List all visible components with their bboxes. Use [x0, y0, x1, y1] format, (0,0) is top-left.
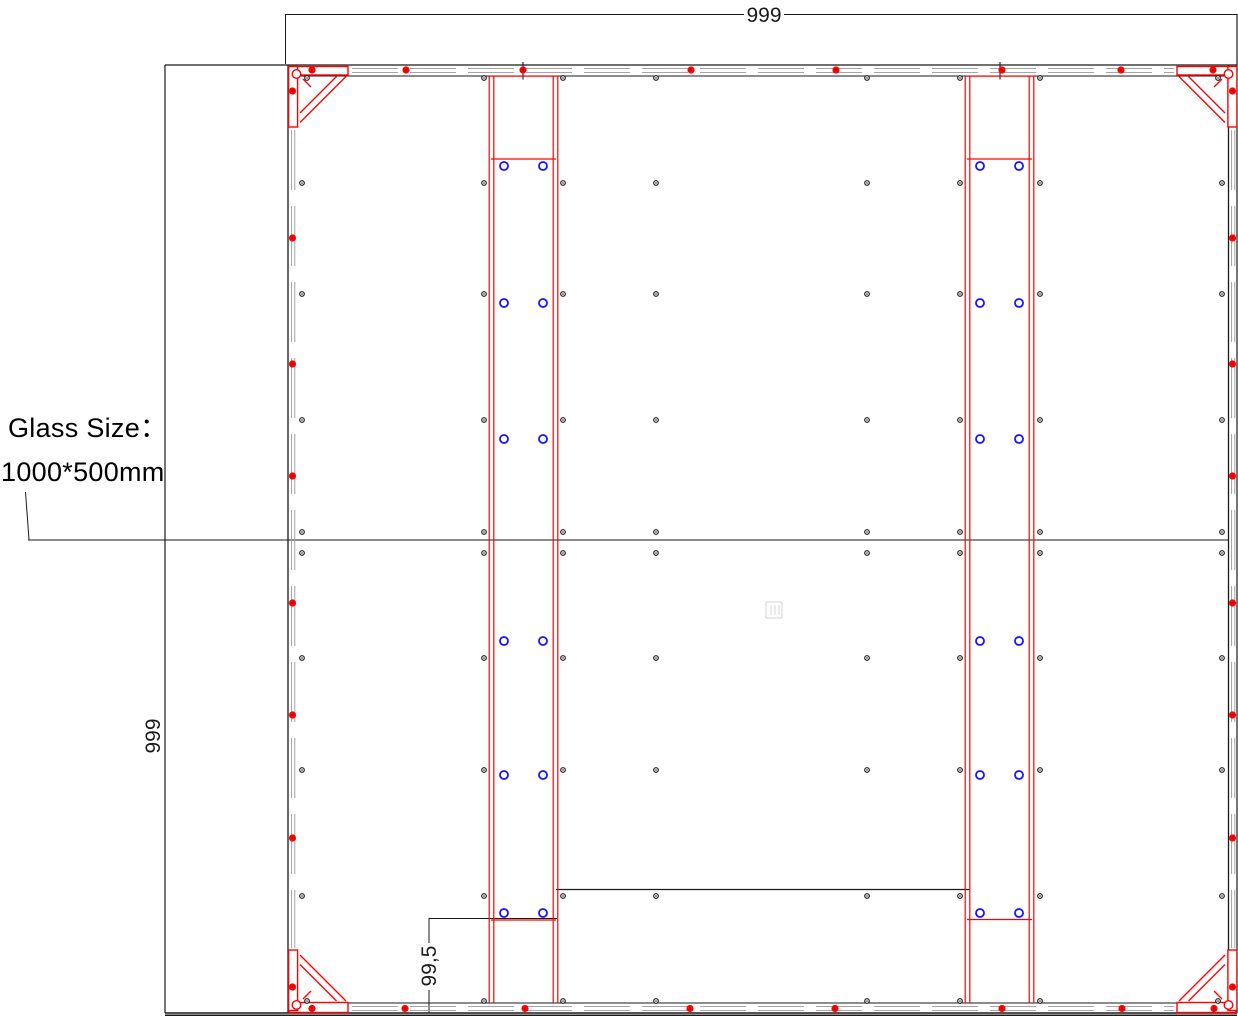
- blue-bolt-hole: [539, 909, 547, 917]
- red-screw-dot-core: [404, 1008, 406, 1010]
- center-mark-box: [766, 602, 782, 618]
- red-screw-dot-core: [292, 837, 294, 839]
- glass-outline-and-borders: [28, 14, 1237, 1015]
- red-screw-dot-core: [405, 69, 407, 71]
- red-screw-dot-core: [1232, 475, 1234, 477]
- blue-bolt-hole: [1015, 909, 1023, 917]
- black-rivet-dot-core: [483, 293, 485, 295]
- black-rivet-dot-core: [1221, 895, 1223, 897]
- black-rivet-dot-core: [866, 1000, 868, 1002]
- bracket-pivot-hole: [1224, 70, 1233, 79]
- black-rivet-dot-core: [959, 77, 961, 79]
- bracket-brace-2: [300, 965, 337, 1002]
- black-rivet-dot-core: [562, 657, 564, 659]
- blue-bolt-hole: [500, 299, 508, 307]
- red-screw-dot-core: [1120, 69, 1122, 71]
- blue-bolt-hole: [1015, 771, 1023, 779]
- red-screw-dot-core: [292, 714, 294, 716]
- black-rivet-dot-core: [483, 895, 485, 897]
- black-rivet-dot-core: [866, 419, 868, 421]
- black-rivet-dot-core: [1039, 77, 1041, 79]
- black-rivet-dot-core: [301, 531, 303, 533]
- black-rivet-dot-core: [562, 531, 564, 533]
- bracket-brace-3: [303, 991, 311, 999]
- black-rivet-dot-core: [483, 531, 485, 533]
- red-screw-dot-core: [292, 475, 294, 477]
- glass-size-label-line2: 1000*500mm: [1, 457, 165, 487]
- label-leader-line: [26, 492, 30, 540]
- black-rivet-dot-core: [959, 293, 961, 295]
- black-rivet-dot-core: [1217, 1000, 1219, 1002]
- black-rivet-dot-core: [866, 769, 868, 771]
- bracket-brace-1: [300, 955, 346, 1001]
- black-rivet-dot-core: [959, 552, 961, 554]
- black-rivet-dot-core: [1039, 182, 1041, 184]
- black-rivet-dot-core: [1039, 552, 1041, 554]
- black-rivet-dot-core: [655, 293, 657, 295]
- black-rivet-dot-core: [301, 657, 303, 659]
- black-rivet-dot-core: [562, 419, 564, 421]
- corner-bracket-bottom-right: [1177, 950, 1237, 1013]
- blue-bolt-hole: [1015, 299, 1023, 307]
- bracket-brace-3: [1214, 991, 1222, 999]
- corner-bracket-top-right: [1177, 67, 1237, 128]
- black-rivet-dot-core: [1221, 552, 1223, 554]
- black-rivet-dot-core: [866, 293, 868, 295]
- black-rivet-dot-core: [655, 77, 657, 79]
- black-rivet-dot-core: [562, 77, 564, 79]
- frame-profiles: [288, 62, 1235, 1013]
- red-screw-dots: [289, 66, 1236, 1012]
- black-rivet-dot-core: [301, 182, 303, 184]
- black-rivet-dot-core: [1221, 657, 1223, 659]
- red-screw-dot-core: [292, 90, 294, 92]
- black-rivet-dot-core: [562, 769, 564, 771]
- black-rivet-dot-core: [959, 182, 961, 184]
- black-rivet-dot-core: [866, 77, 868, 79]
- red-screw-dot-core: [1121, 1008, 1123, 1010]
- red-screw-dot-core: [834, 1008, 836, 1010]
- blue-bolt-hole: [539, 771, 547, 779]
- black-rivet-dot-core: [306, 77, 308, 79]
- corner-bracket-bottom-left: [289, 950, 348, 1013]
- black-rivet-dot-core: [1221, 769, 1223, 771]
- red-screw-dot-core: [1232, 602, 1234, 604]
- black-rivet-dot-core: [1217, 77, 1219, 79]
- black-rivet-dot-core: [1221, 531, 1223, 533]
- black-rivet-dot-core: [1039, 293, 1041, 295]
- red-screw-dot-core: [1232, 837, 1234, 839]
- black-rivet-dot-core: [483, 77, 485, 79]
- blue-bolt-hole: [500, 909, 508, 917]
- black-rivet-dot-core: [959, 657, 961, 659]
- red-screw-dot-core: [292, 986, 294, 988]
- dim-bottom-99-5: 99,5: [418, 946, 441, 987]
- blue-bolt-hole: [500, 162, 508, 170]
- black-rivet-dot-core: [1039, 895, 1041, 897]
- glass-size-label-line1: Glass Size：: [8, 413, 167, 443]
- black-rivet-dot-core: [866, 657, 868, 659]
- black-rivet-dot-core: [1221, 293, 1223, 295]
- black-rivet-dot-core: [1039, 1000, 1041, 1002]
- bracket-pivot-hole: [1224, 1001, 1233, 1010]
- blue-bolt-hole: [1015, 637, 1023, 645]
- blue-bolt-hole: [500, 637, 508, 645]
- red-screw-dot-core: [1001, 69, 1003, 71]
- black-rivet-dot-core: [866, 531, 868, 533]
- red-screw-dot-core: [690, 69, 692, 71]
- black-rivet-dot-core: [1221, 182, 1223, 184]
- black-rivet-dot-core: [562, 1000, 564, 1002]
- black-rivet-dot-core: [866, 895, 868, 897]
- blue-bolt-hole: [500, 771, 508, 779]
- black-rivet-dot-core: [655, 552, 657, 554]
- black-rivet-dot-core: [655, 895, 657, 897]
- blue-bolt-hole: [539, 637, 547, 645]
- black-rivet-dot-core: [959, 895, 961, 897]
- red-screw-dot-core: [1212, 69, 1214, 71]
- red-screw-dot-core: [522, 69, 524, 71]
- red-screw-dot-core: [311, 69, 313, 71]
- red-screw-dot-core: [292, 602, 294, 604]
- corner-bracket-top-left: [289, 67, 348, 128]
- blue-bolt-hole: [976, 909, 984, 917]
- black-rivet-dot-core: [301, 895, 303, 897]
- black-rivet-dot-core: [959, 1000, 961, 1002]
- black-rivet-dot-core: [655, 182, 657, 184]
- black-rivet-dot-core: [1221, 419, 1223, 421]
- red-screw-dot-core: [292, 237, 294, 239]
- bracket-brace-2: [1189, 965, 1226, 1002]
- blue-bolt-hole: [539, 435, 547, 443]
- black-rivet-dot-core: [483, 419, 485, 421]
- red-screw-dot-core: [1001, 1008, 1003, 1010]
- red-screw-dot-core: [1232, 714, 1234, 716]
- blue-bolt-hole: [976, 435, 984, 443]
- black-rivet-dot-core: [301, 293, 303, 295]
- blue-bolt-hole: [976, 637, 984, 645]
- blue-bolt-hole: [976, 299, 984, 307]
- red-screw-dot-core: [524, 1008, 526, 1010]
- black-rivet-dot-core: [655, 531, 657, 533]
- black-rivet-dot-core: [306, 1000, 308, 1002]
- red-screw-dot-core: [1232, 363, 1234, 365]
- black-rivet-dot-core: [959, 769, 961, 771]
- bracket-pivot-hole: [292, 70, 301, 79]
- black-rivet-dot-core: [562, 293, 564, 295]
- black-rivet-dot-core: [1039, 769, 1041, 771]
- black-rivet-dot-core: [562, 552, 564, 554]
- red-screw-dot-core: [1213, 1008, 1215, 1010]
- blue-bolt-hole: [539, 299, 547, 307]
- black-rivet-dot-core: [1039, 657, 1041, 659]
- blue-bolt-hole: [500, 435, 508, 443]
- black-rivet-dot-core: [483, 1000, 485, 1002]
- black-rivet-dot-core: [959, 531, 961, 533]
- red-screw-dot-core: [1232, 237, 1234, 239]
- glass-size-label: Glass Size： 1000*500mm: [1, 413, 167, 540]
- red-screw-dot-core: [292, 363, 294, 365]
- blue-bolt-hole: [1015, 435, 1023, 443]
- red-screw-dot-core: [689, 1008, 691, 1010]
- cad-drawing-canvas: 999 999 99,5 Glass Size： 1000*500mm: [0, 0, 1238, 1016]
- red-screw-dot-core: [1232, 90, 1234, 92]
- black-rivet-dot-core: [655, 419, 657, 421]
- black-rivet-dot-core: [1039, 531, 1041, 533]
- red-screw-dot-core: [1232, 986, 1234, 988]
- black-rivet-dot-core: [655, 657, 657, 659]
- black-rivet-dot-core: [483, 552, 485, 554]
- dim-left-999: 999: [142, 718, 165, 753]
- black-rivet-dot-core: [483, 182, 485, 184]
- black-rivet-dot-core: [1039, 419, 1041, 421]
- black-rivet-dot-core: [301, 419, 303, 421]
- dimensions: 999 999 99,5: [142, 4, 1237, 1013]
- black-rivet-dot-core: [959, 419, 961, 421]
- black-rivet-dot-core: [301, 552, 303, 554]
- black-rivet-dot-core: [562, 895, 564, 897]
- black-rivet-dot-core: [655, 1000, 657, 1002]
- black-rivet-dot-core: [655, 769, 657, 771]
- black-rivet-dot-core: [483, 769, 485, 771]
- blue-bolt-hole: [976, 771, 984, 779]
- red-screw-dot-core: [835, 69, 837, 71]
- dim-top-999: 999: [746, 4, 781, 27]
- blue-bolt-hole: [1015, 162, 1023, 170]
- black-rivet-dot-core: [866, 552, 868, 554]
- center-mark: [766, 602, 782, 618]
- blue-bolt-hole: [976, 162, 984, 170]
- red-screw-dot-core: [311, 1008, 313, 1010]
- bracket-brace-1: [1179, 955, 1225, 1001]
- black-rivet-dot-core: [483, 657, 485, 659]
- black-rivet-dot-core: [562, 182, 564, 184]
- black-rivet-dot-core: [301, 769, 303, 771]
- blue-bolt-hole: [539, 162, 547, 170]
- frame-assembly-drawing: 999 999 99,5 Glass Size： 1000*500mm: [0, 0, 1238, 1016]
- black-rivet-dot-core: [866, 182, 868, 184]
- bracket-pivot-hole: [292, 1001, 301, 1010]
